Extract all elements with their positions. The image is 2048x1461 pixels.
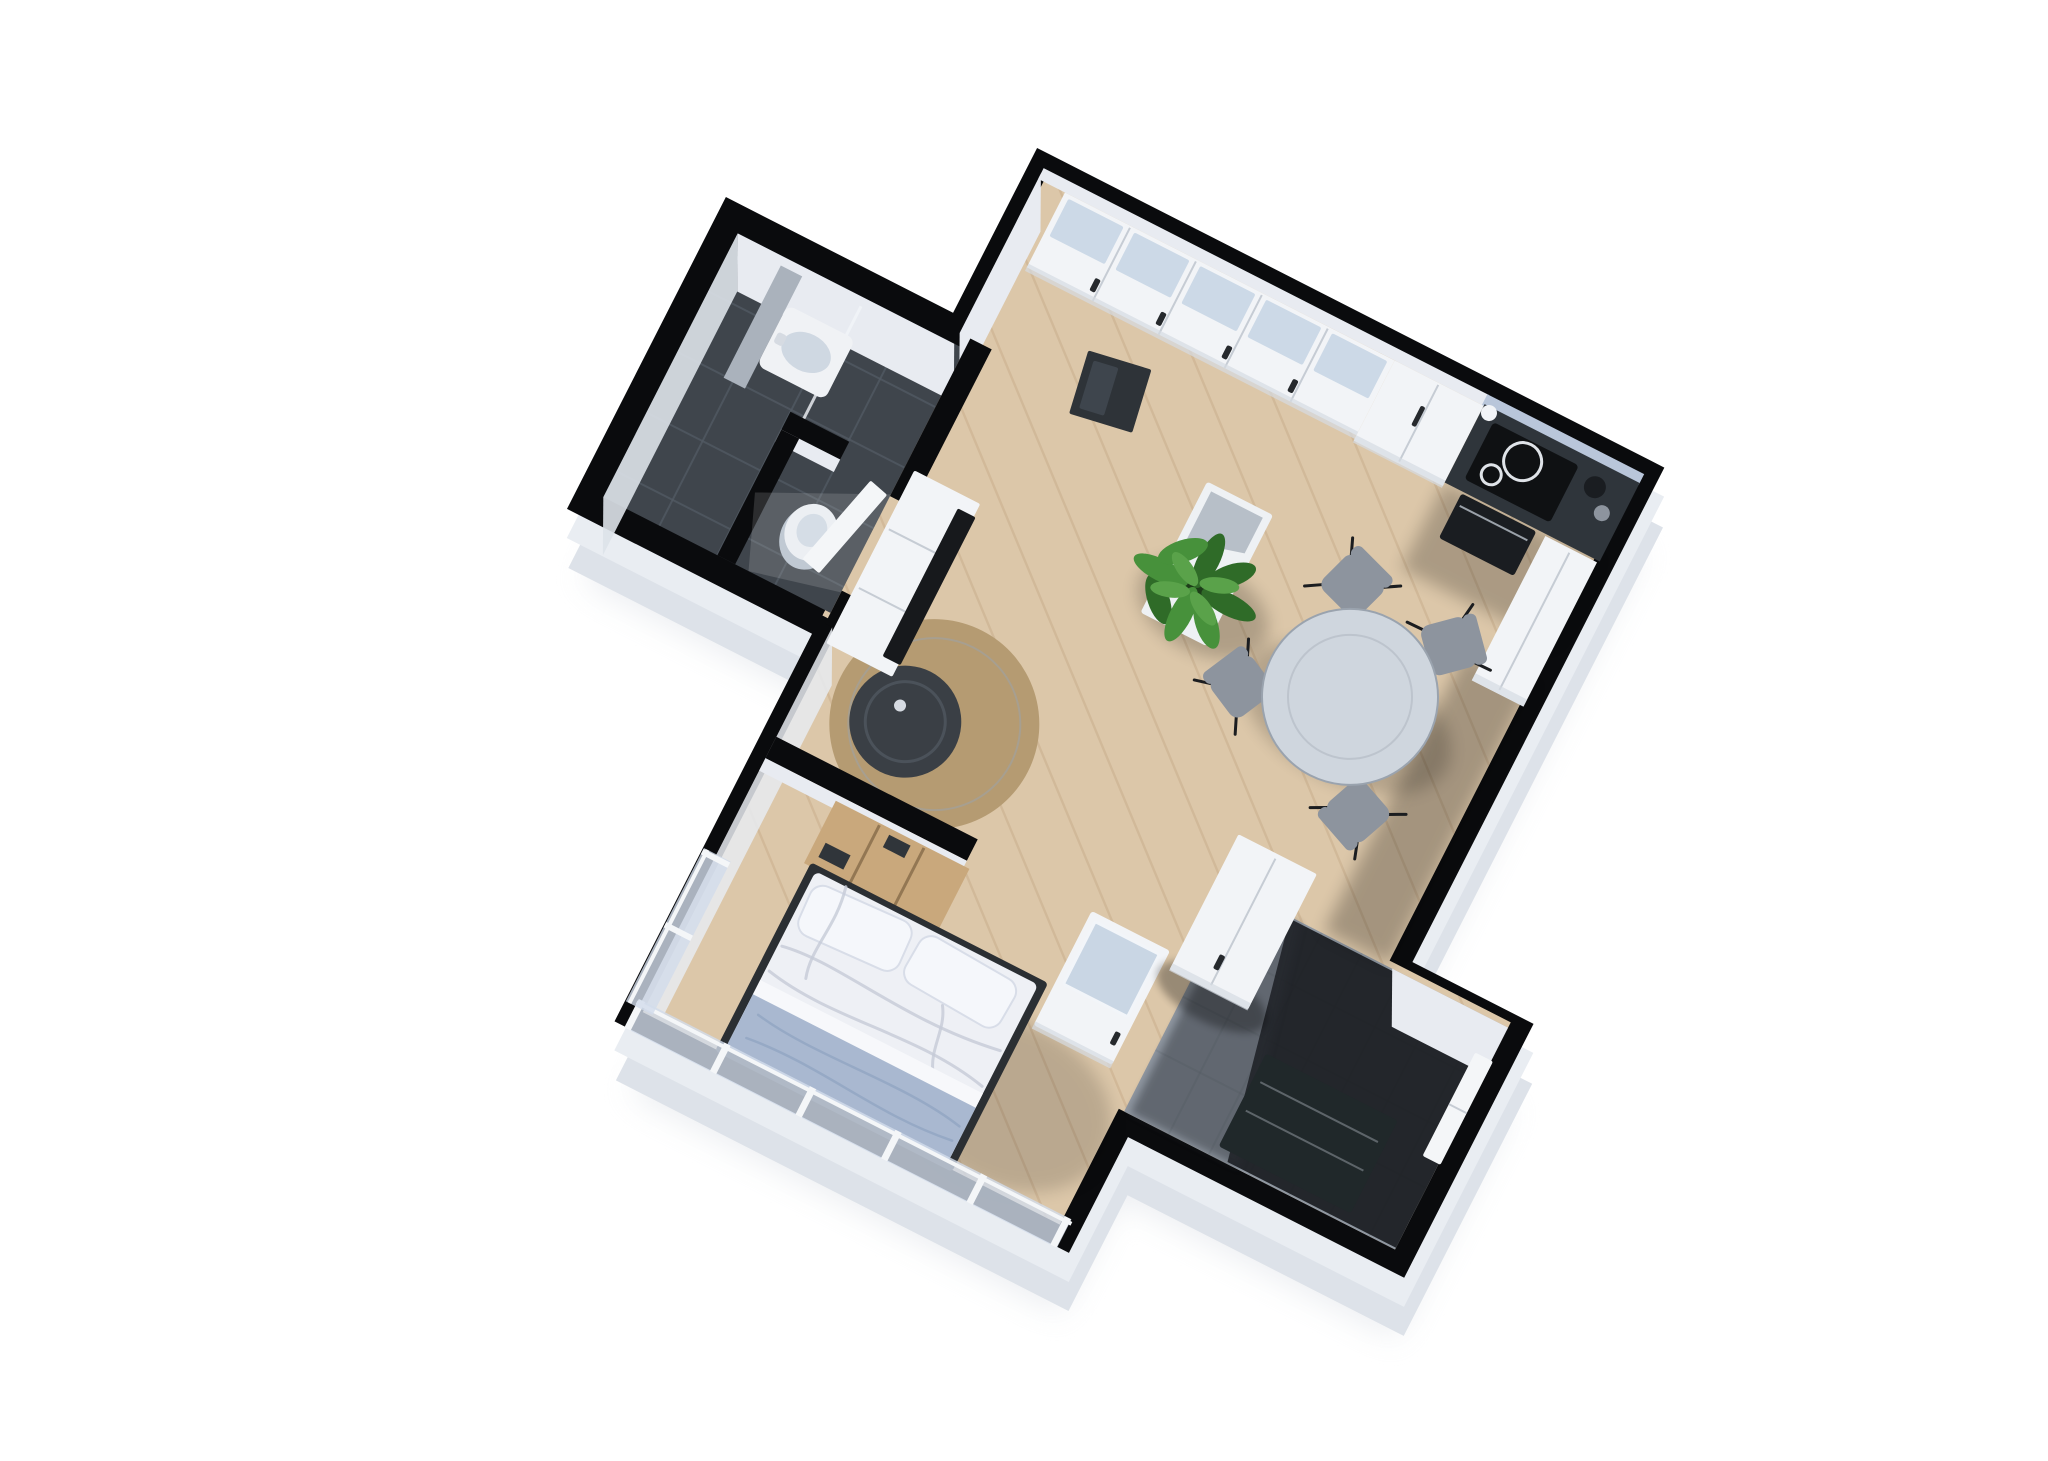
apartment-3d-floorplan (0, 0, 2048, 1461)
floorplan-render-canvas (0, 0, 2048, 1461)
